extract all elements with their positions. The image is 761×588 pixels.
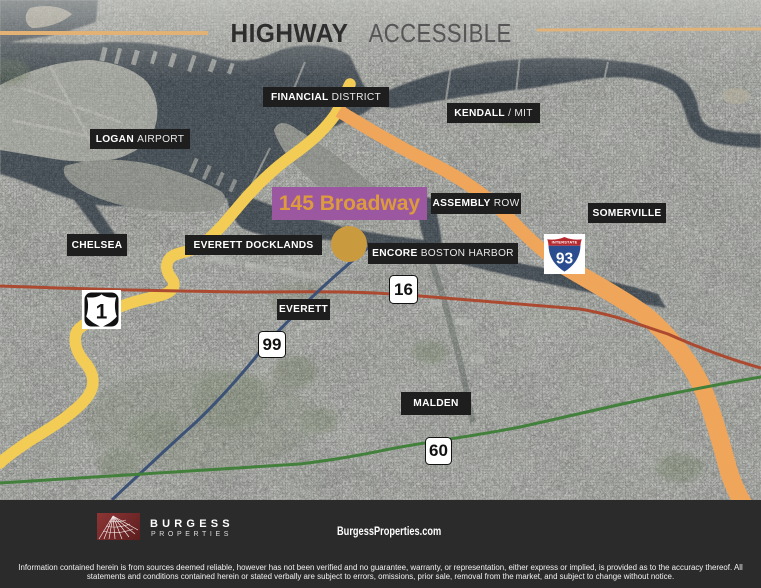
svg-text:93: 93: [556, 251, 574, 268]
svg-text:INTERSTATE: INTERSTATE: [552, 240, 578, 245]
svg-text:1: 1: [96, 301, 108, 324]
